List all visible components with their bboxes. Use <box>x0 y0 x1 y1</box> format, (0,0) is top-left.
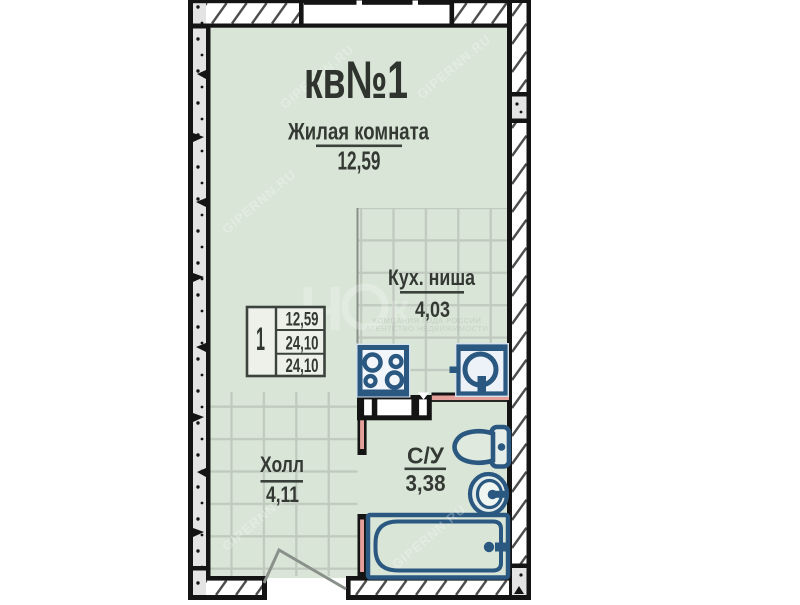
svg-text:3,38: 3,38 <box>406 470 446 496</box>
svg-text:4,03: 4,03 <box>415 297 450 322</box>
svg-text:АГЕНТСТВО НЕДВИЖИМОСТИ: АГЕНТСТВО НЕДВИЖИМОСТИ <box>366 324 489 333</box>
svg-text:24,10: 24,10 <box>286 356 319 377</box>
svg-text:кв№1: кв№1 <box>304 51 408 110</box>
svg-text:4,11: 4,11 <box>266 482 299 507</box>
svg-text:Холл: Холл <box>260 452 304 477</box>
svg-text:24,10: 24,10 <box>286 333 319 354</box>
svg-text:С/У: С/У <box>407 443 445 469</box>
svg-text:1: 1 <box>256 321 265 357</box>
svg-text:12,59: 12,59 <box>338 146 381 176</box>
svg-text:Кух. ниша: Кух. ниша <box>388 265 476 290</box>
svg-text:12,59: 12,59 <box>286 310 319 331</box>
svg-text:Жилая комната: Жилая комната <box>287 119 429 146</box>
